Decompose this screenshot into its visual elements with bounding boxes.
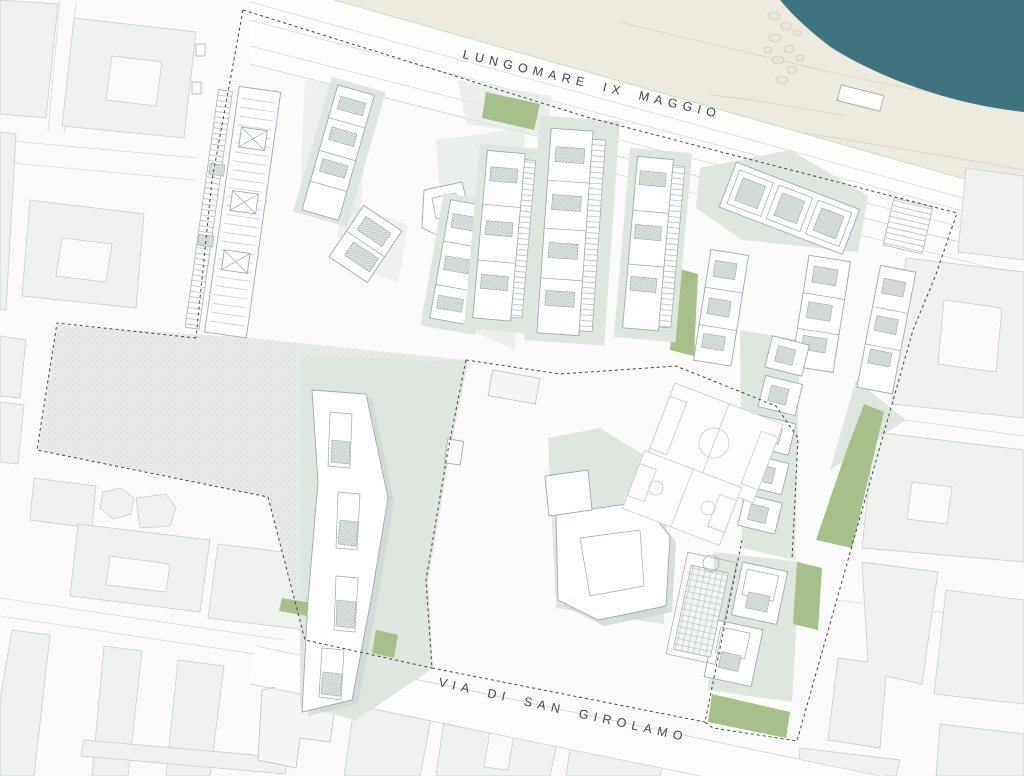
lawn [708,694,790,738]
lawn [372,630,398,658]
site-plan-svg: LUNGOMARE IX MAGGIO VIA DI SAN GIROLAMO [0,0,1024,776]
housing-row [524,115,620,345]
pavilion-building [488,370,540,404]
masterplan-canvas: LUNGOMARE IX MAGGIO VIA DI SAN GIROLAMO [0,0,1024,776]
terraced-strip-building [185,84,281,338]
small-building [444,439,463,465]
lawn [793,562,822,630]
